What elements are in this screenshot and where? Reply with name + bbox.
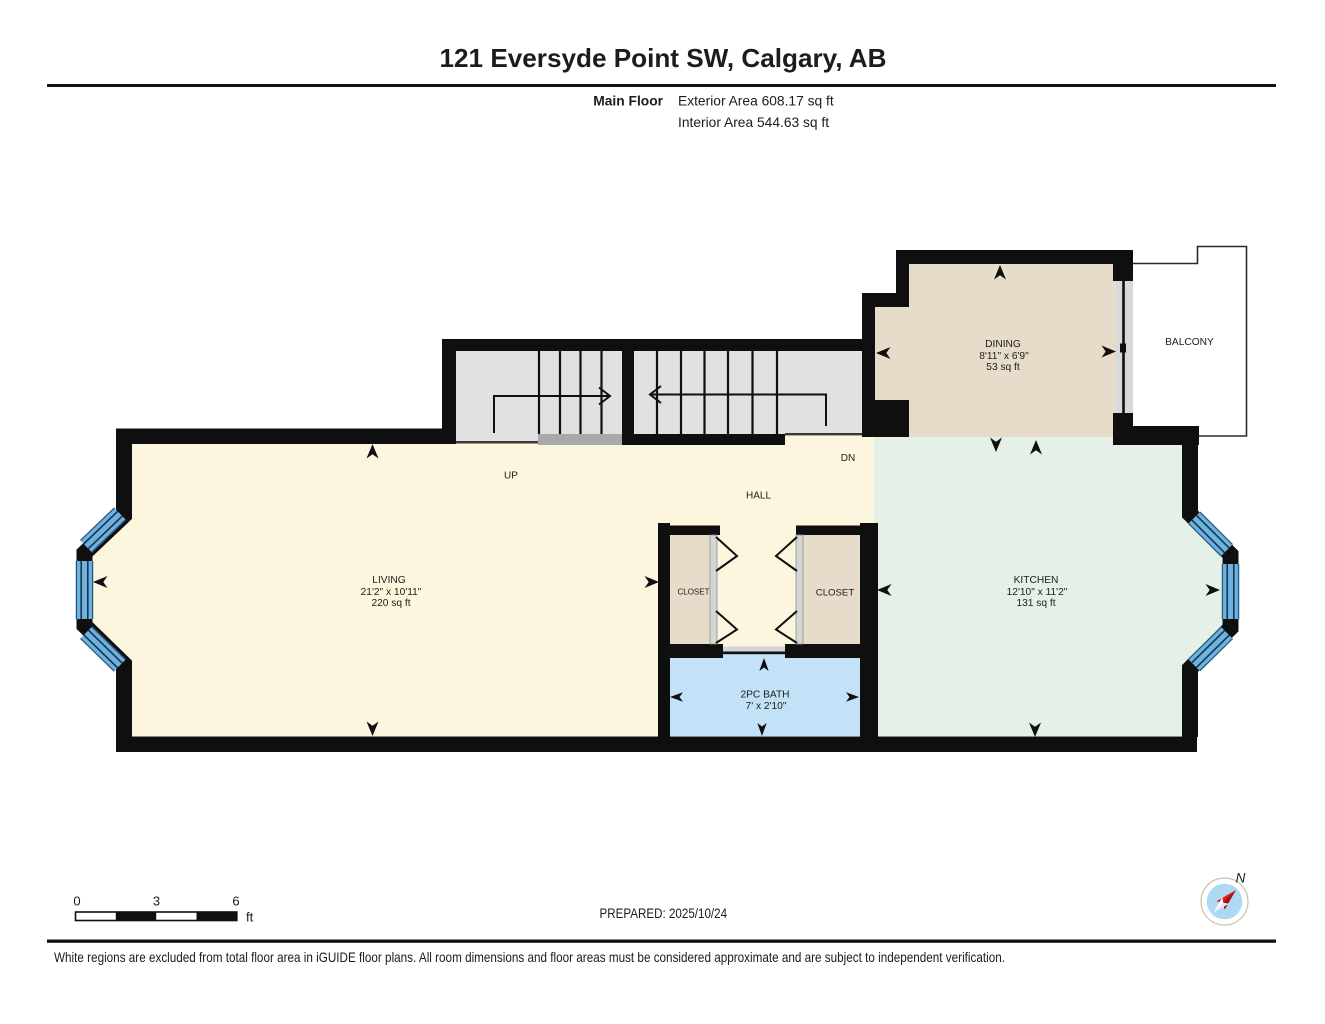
svg-text:6: 6 <box>232 894 239 909</box>
svg-text:PREPARED: 2025/10/24: PREPARED: 2025/10/24 <box>600 906 728 922</box>
svg-text:3: 3 <box>153 894 160 909</box>
svg-text:KITCHEN: KITCHEN <box>1014 575 1059 586</box>
svg-text:LIVING: LIVING <box>372 575 405 586</box>
svg-text:Exterior Area 608.17 sq ft: Exterior Area 608.17 sq ft <box>678 94 834 109</box>
svg-text:0: 0 <box>73 894 80 909</box>
svg-text:N: N <box>1236 871 1246 886</box>
svg-text:53 sq ft: 53 sq ft <box>986 362 1020 373</box>
svg-text:HALL: HALL <box>746 491 771 502</box>
svg-text:ft: ft <box>246 910 254 925</box>
svg-text:220 sq ft: 220 sq ft <box>371 598 410 609</box>
svg-text:7' x 2'10": 7' x 2'10" <box>746 701 787 712</box>
svg-text:Interior Area 544.63 sq ft: Interior Area 544.63 sq ft <box>678 115 829 130</box>
svg-text:DN: DN <box>841 453 855 464</box>
svg-text:White regions are excluded fro: White regions are excluded from total fl… <box>54 949 1005 965</box>
svg-text:CLOSET: CLOSET <box>816 588 855 599</box>
svg-text:UP: UP <box>504 471 518 482</box>
svg-text:BALCONY: BALCONY <box>1165 337 1214 348</box>
svg-text:DINING: DINING <box>985 339 1021 350</box>
svg-text:8'11" x 6'9": 8'11" x 6'9" <box>979 351 1029 362</box>
svg-text:2PC BATH: 2PC BATH <box>740 690 789 701</box>
svg-text:131 sq ft: 131 sq ft <box>1016 598 1055 609</box>
svg-text:21'2" x 10'11": 21'2" x 10'11" <box>361 587 422 598</box>
svg-text:12'10" x 11'2": 12'10" x 11'2" <box>1007 587 1068 598</box>
svg-text:CLOSET: CLOSET <box>677 588 709 597</box>
svg-text:121 Eversyde Point SW, Calgary: 121 Eversyde Point SW, Calgary, AB <box>440 43 887 73</box>
svg-text:Main Floor: Main Floor <box>593 94 663 109</box>
